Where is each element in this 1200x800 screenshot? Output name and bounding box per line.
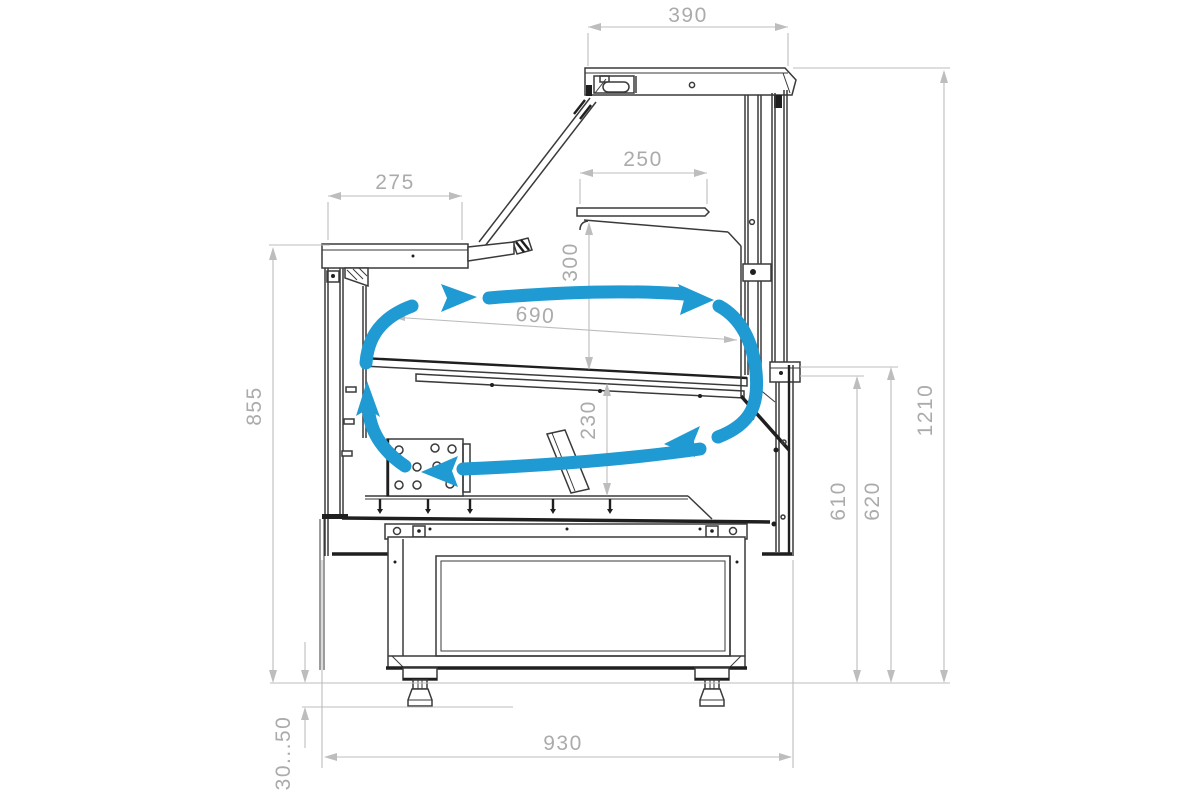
dim-label-855: 855 — [243, 386, 266, 426]
dim-label-250: 250 — [623, 148, 663, 171]
airflow-arrow-top-icon — [489, 292, 684, 298]
display-deck — [362, 358, 747, 398]
base-plinth — [386, 537, 747, 668]
dim-label-620: 620 — [861, 481, 884, 521]
worktop — [322, 242, 514, 286]
dim-worktop-height: 855 — [243, 245, 330, 683]
dim-label-230: 230 — [577, 400, 600, 440]
dim-rear-height-inner: 610 — [800, 376, 864, 683]
dim-label-300: 300 — [559, 242, 582, 282]
dim-worktop-depth: 275 — [328, 171, 462, 240]
airflow-curve-right-icon — [718, 306, 757, 437]
airflow-arrowhead-into-case-icon — [441, 284, 477, 312]
dim-label-610: 610 — [827, 481, 850, 521]
dim-label-275: 275 — [375, 171, 415, 194]
rear-lower-panel — [741, 365, 793, 556]
dim-rear-height-outer: 620 — [800, 367, 898, 683]
well-floor — [342, 430, 770, 522]
airflow-arrow-bottom-icon — [463, 449, 700, 469]
dim-canopy-depth: 390 — [588, 4, 788, 66]
dim-label-930: 930 — [543, 732, 583, 755]
dim-label-390: 390 — [668, 4, 708, 27]
case-structure — [320, 68, 800, 706]
floor-pins — [377, 499, 613, 514]
dim-shelf-depth: 250 — [580, 148, 707, 204]
drawing-canvas: 390 275 250 300 — [0, 0, 1200, 800]
dim-foot-adjust: 30...50 — [272, 642, 309, 790]
display-case-cross-section: 390 275 250 300 — [0, 0, 1200, 800]
rear-ledge — [770, 362, 800, 382]
dim-label-1210: 1210 — [914, 384, 937, 437]
front-foot — [403, 668, 437, 706]
airflow-curve-top-left-icon — [366, 306, 412, 363]
dim-label-690: 690 — [515, 303, 556, 329]
dimensions: 390 275 250 300 — [243, 4, 950, 790]
front-glass — [479, 98, 596, 254]
lamp-icon — [594, 76, 634, 93]
glass-clamp — [513, 238, 532, 254]
canopy — [585, 68, 796, 108]
dim-label-30-50: 30...50 — [272, 716, 295, 791]
rear-foot — [695, 668, 729, 706]
